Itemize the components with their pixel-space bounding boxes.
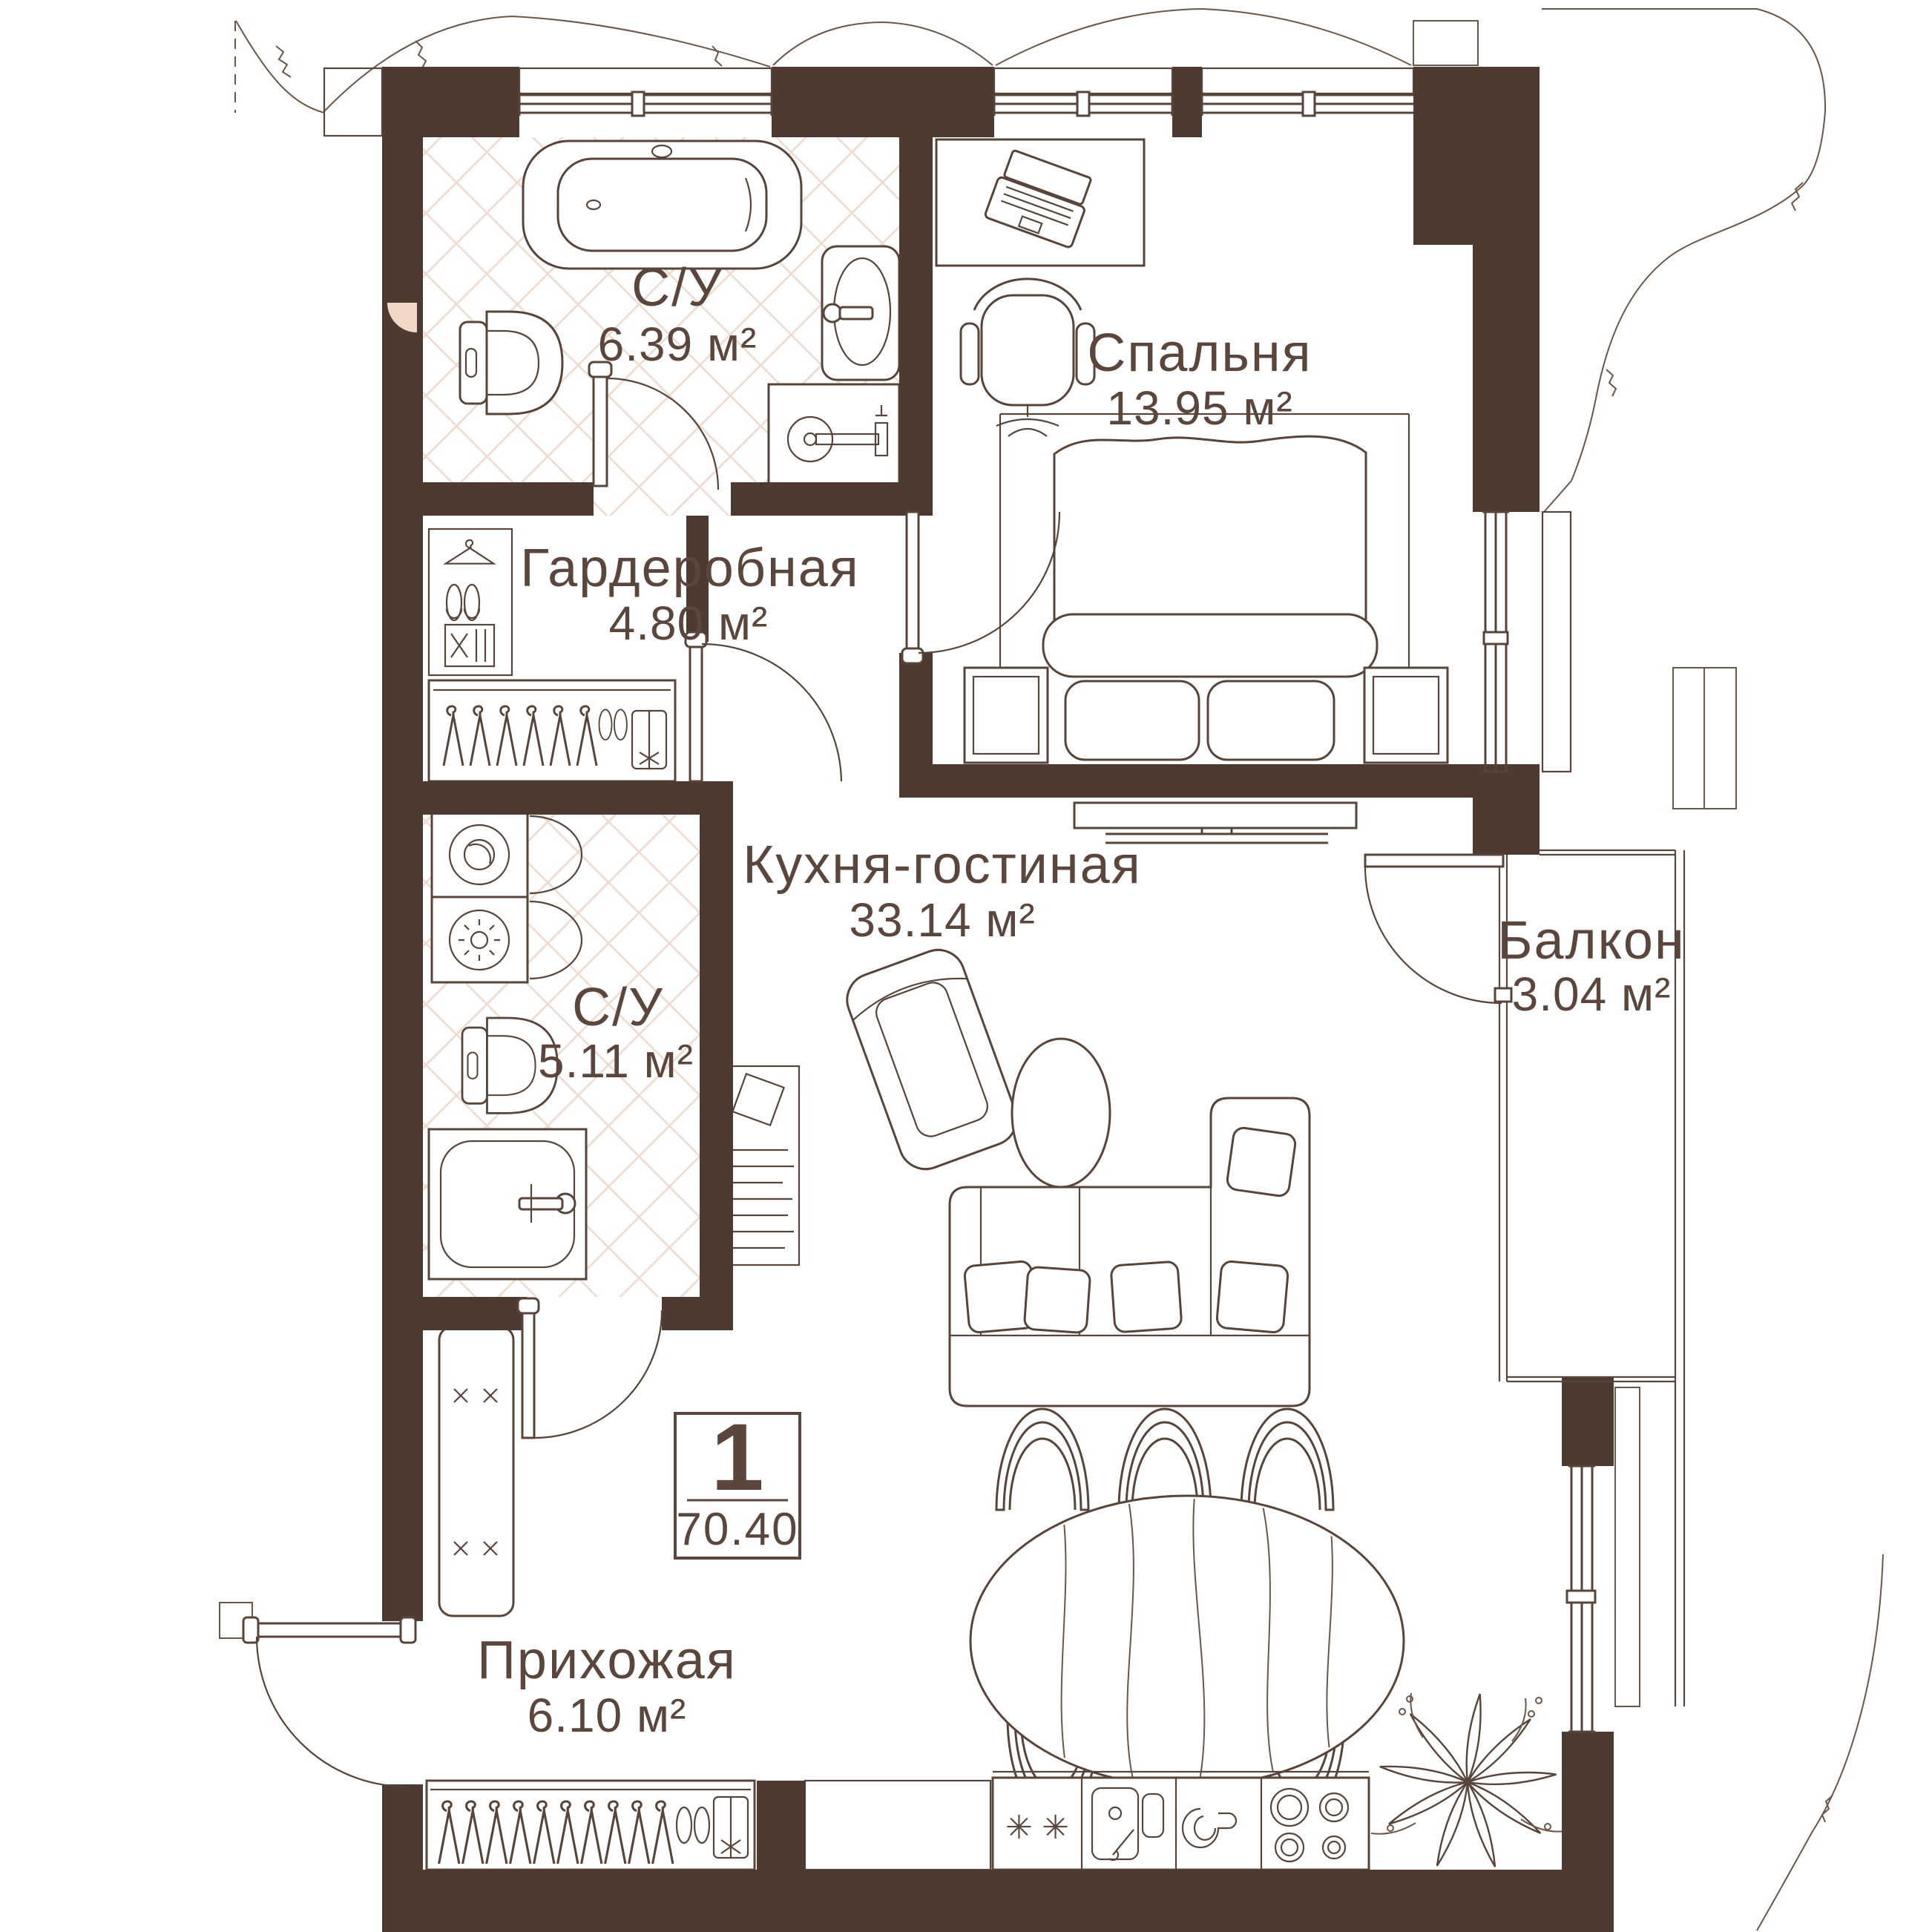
window-bedroom-2 — [1202, 68, 1413, 116]
label-kitchen-living-area: 33.14 м² — [849, 893, 1035, 947]
label-bedroom-area: 13.95 м² — [1106, 381, 1292, 435]
shoes-icon — [447, 585, 479, 620]
floor-plan: ✳ ✳ — [0, 0, 1932, 1932]
plant-icon — [1371, 1693, 1565, 1868]
window-bedroom-side — [1482, 512, 1571, 772]
wardrobe-rail — [429, 680, 675, 781]
door-entrance — [243, 1617, 415, 1787]
bench — [439, 1327, 513, 1616]
storage-box-icon — [445, 625, 494, 666]
sofa — [950, 1098, 1310, 1406]
apartment-info-box: 1 70.40 — [675, 1404, 800, 1558]
apartment-number: 1 — [711, 1404, 763, 1511]
balcony-door-handle — [1495, 988, 1511, 1002]
closet-column — [429, 529, 512, 675]
window-bedroom-1 — [994, 68, 1172, 116]
label-hallway-name: Прихожая — [477, 1631, 737, 1690]
vanity-sink-icon — [429, 1129, 586, 1279]
fridge-freezer-marks: ✳ ✳ — [1005, 1810, 1069, 1846]
label-balcony-area: 3.04 м² — [1512, 967, 1672, 1021]
armchair — [840, 942, 1025, 1176]
kitchen-counter: ✳ ✳ — [993, 1772, 1369, 1870]
label-hallway-area: 6.10 м² — [528, 1689, 687, 1742]
label-bathroom-bottom-area: 5.11 м² — [538, 1034, 694, 1088]
apartment-total-area: 70.40 — [676, 1504, 798, 1555]
sink-icon — [822, 246, 899, 380]
toilet-icon — [460, 312, 562, 414]
pillow — [1208, 681, 1334, 760]
hanger-icon — [446, 540, 494, 564]
bedroom-furniture — [936, 139, 1448, 763]
window-dining — [1567, 1466, 1595, 1732]
label-bedroom-name: Спальня — [1087, 323, 1312, 383]
office-chair — [961, 279, 1094, 436]
nightstand — [1364, 668, 1448, 763]
door-balcony — [1365, 855, 1503, 1003]
dining-table — [970, 1409, 1404, 1818]
label-bathroom-bottom-name: С/У — [572, 978, 664, 1037]
living-furniture: ✳ ✳ — [717, 803, 1565, 1870]
bed — [1043, 436, 1377, 760]
label-kitchen-living-name: Кухня-гостиная — [743, 835, 1141, 895]
bed-bolster — [1043, 614, 1377, 677]
door-bedroom — [902, 512, 1059, 663]
bathtub-icon — [523, 141, 801, 269]
label-wardrobe-name: Гардеробная — [520, 539, 860, 598]
nightstand — [965, 668, 1048, 763]
coffee-table — [1012, 1039, 1110, 1187]
desk — [936, 139, 1144, 266]
label-balcony-name: Балкон — [1497, 911, 1685, 970]
door-wardrobe — [686, 632, 841, 781]
pillow — [1065, 681, 1199, 760]
hallway-furniture — [427, 1327, 990, 1870]
label-bathroom-top-name: С/У — [631, 258, 723, 318]
hallway-wardrobe — [427, 1781, 755, 1870]
label-bathroom-top-area: 6.39 м² — [598, 318, 758, 371]
label-wardrobe-area: 4.80 м² — [609, 597, 769, 650]
door-bathroom-bottom — [518, 1298, 662, 1438]
